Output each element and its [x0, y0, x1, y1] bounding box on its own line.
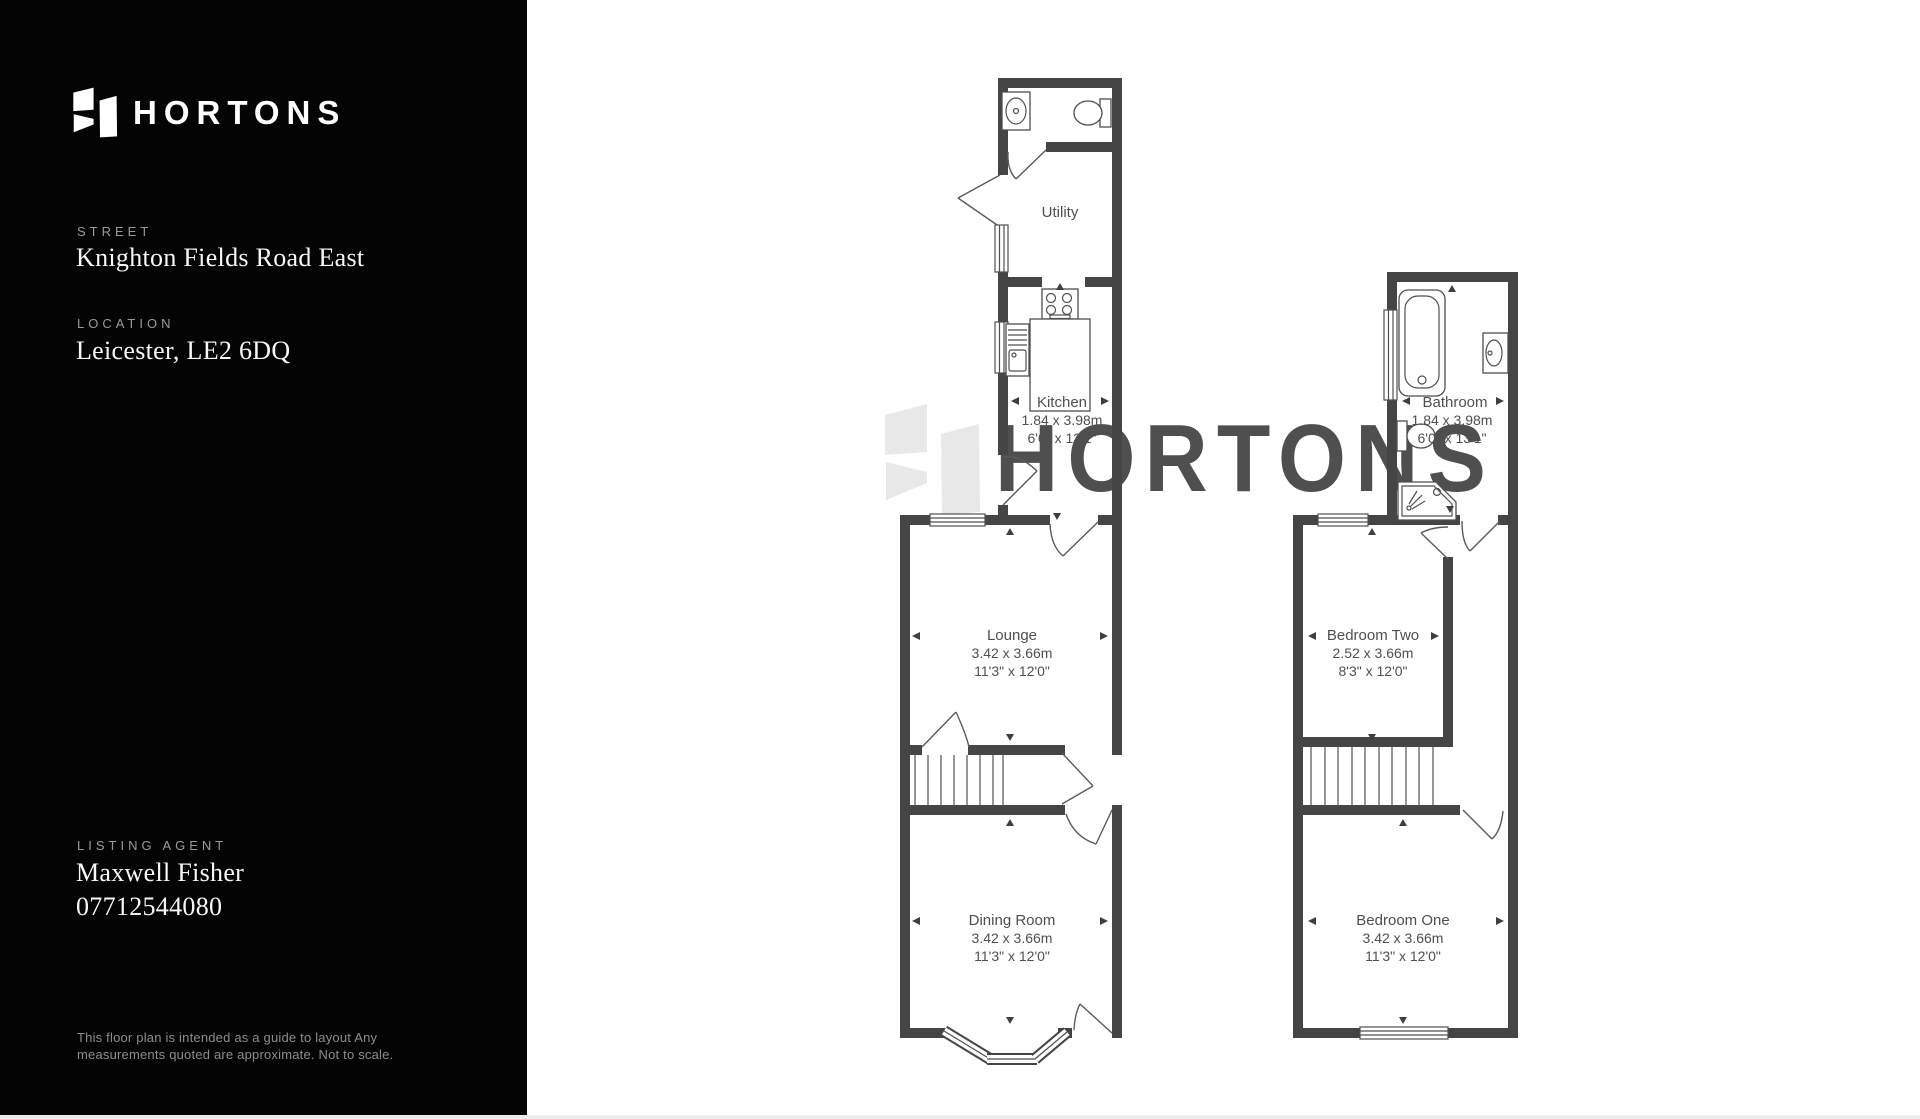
listing-agent-label: LISTING AGENT: [77, 838, 227, 853]
floorplan-canvas: HORTONS: [527, 0, 1920, 1119]
dining-imperial: 11'3" x 12'0": [974, 948, 1050, 964]
bathroom-imperial: 6'0" x 13'1": [1418, 430, 1487, 446]
wc-sink-icon: [1002, 92, 1030, 130]
brand-name: HORTONS: [133, 96, 346, 129]
location-value: Leicester, LE2 6DQ: [76, 336, 290, 366]
listing-agent-phone: 07712544080: [76, 892, 222, 922]
wc-door: [1008, 150, 1046, 179]
brand-logo: HORTONS: [71, 86, 346, 138]
bedroom-one-window: [1360, 1027, 1448, 1039]
street-label: STREET: [77, 224, 152, 239]
bedroom-one-metric: 3.42 x 3.66m: [1363, 930, 1444, 946]
location-label: LOCATION: [77, 316, 175, 331]
kitchen-metric: 1.84 x 3.98m: [1022, 412, 1103, 428]
bathroom-label: Bathroom: [1422, 394, 1487, 411]
listing-agent-name: Maxwell Fisher: [76, 858, 244, 888]
utility-window: [995, 225, 1008, 272]
bedroom-two-door: [1421, 527, 1448, 559]
utility-entry-door: [958, 175, 1000, 227]
stairs-ground: [915, 755, 1003, 805]
bedroom-two-label: Bedroom Two: [1327, 627, 1419, 644]
first-floor-plan: Bathroom 1.84 x 3.98m 6'0" x 13'1" Bedro…: [1293, 272, 1518, 1039]
bedroom-two-imperial: 8'3" x 12'0": [1339, 663, 1408, 679]
bathtub-icon: [1399, 290, 1445, 396]
disclaimer-line2: measurements quoted are approximate. Not…: [77, 1046, 393, 1063]
lounge-metric: 3.42 x 3.66m: [972, 645, 1053, 661]
stairs-first: [1311, 747, 1433, 805]
stairs-door: [922, 712, 969, 747]
lounge-label: Lounge: [987, 627, 1037, 644]
bedroom-one-door: [1463, 810, 1503, 839]
hob-icon: [1042, 289, 1078, 319]
bay-window: [944, 1031, 1067, 1059]
bedroom-one-label: Bedroom One: [1356, 912, 1449, 929]
bedroom-two-window: [1318, 514, 1368, 526]
dining-door: [1066, 810, 1112, 844]
hortons-logo-icon: [71, 86, 118, 138]
street-value: Knighton Fields Road East: [76, 243, 364, 273]
bedroom-two-metric: 2.52 x 3.66m: [1333, 645, 1414, 661]
disclaimer-line1: This floor plan is intended as a guide t…: [77, 1029, 393, 1046]
watermark-logo-icon: [885, 404, 980, 515]
dining-label: Dining Room: [969, 912, 1056, 929]
kitchen-label: Kitchen: [1037, 394, 1087, 411]
bedroom-one-imperial: 11'3" x 12'0": [1365, 948, 1441, 964]
floorplan-page: HORTONS STREET Knighton Fields Road East…: [0, 0, 1920, 1119]
disclaimer: This floor plan is intended as a guide t…: [77, 1029, 393, 1063]
lounge-door: [1050, 522, 1098, 556]
kitchen-imperial: 6'0" x 13'1": [1028, 430, 1097, 446]
wc-toilet-icon: [1074, 99, 1111, 127]
bathroom-sink-icon: [1483, 333, 1508, 373]
kitchen-sink-icon: [1006, 324, 1029, 376]
bathroom-window: [1384, 310, 1397, 400]
lounge-imperial: 11'3" x 12'0": [974, 663, 1050, 679]
dining-exterior-door: [1074, 1004, 1112, 1033]
sidebar: HORTONS STREET Knighton Fields Road East…: [0, 0, 527, 1115]
ground-walls: [900, 78, 1122, 1038]
dining-metric: 3.42 x 3.66m: [972, 930, 1053, 946]
bathroom-door: [1462, 521, 1500, 551]
utility-label: Utility: [1042, 204, 1079, 221]
bathroom-metric: 1.84 x 3.98m: [1412, 412, 1493, 428]
lounge-window: [930, 514, 985, 526]
hall-door: [1062, 753, 1093, 804]
ground-floor-plan: Utility Kitchen 1.84 x 3.98m 6'0" x 13'1…: [900, 78, 1122, 1059]
